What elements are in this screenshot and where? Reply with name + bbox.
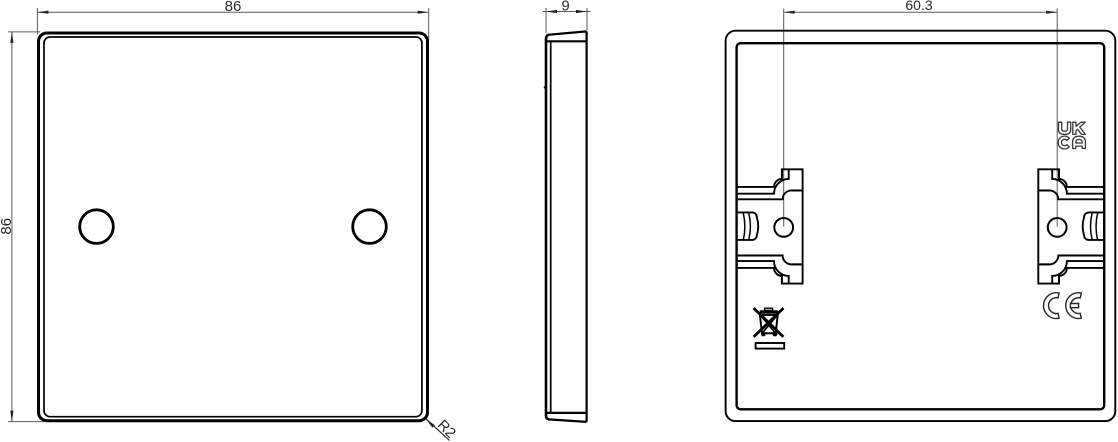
svg-text:9: 9 <box>561 0 569 15</box>
svg-text:86: 86 <box>0 218 15 235</box>
svg-text:60.3: 60.3 <box>905 0 932 13</box>
svg-text:86: 86 <box>225 0 242 15</box>
